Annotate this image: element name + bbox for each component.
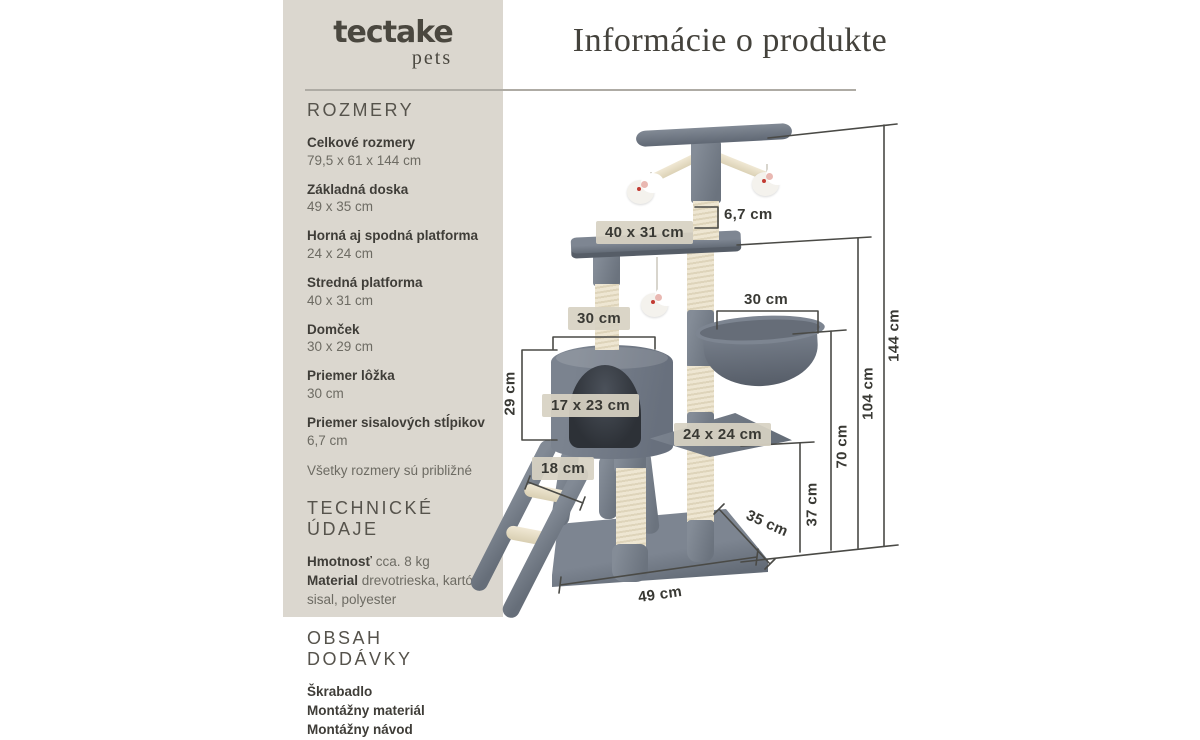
spec-value: 30 cm bbox=[307, 386, 344, 401]
mouse-toy bbox=[641, 291, 671, 317]
spec-label: Priemer lôžka bbox=[307, 368, 395, 383]
toy-string bbox=[656, 257, 658, 293]
tech-label: Material bbox=[307, 573, 358, 588]
sisal-post bbox=[687, 250, 714, 312]
dim-height-37: 37 cm bbox=[804, 470, 821, 540]
cat-tree-base-board bbox=[540, 500, 780, 592]
spec-label: Horná aj spodná platforma bbox=[307, 228, 478, 243]
post-foot bbox=[612, 544, 648, 582]
dim-base-depth: 35 cm bbox=[743, 507, 790, 540]
top-post bbox=[691, 141, 721, 203]
dim-post-diameter: 6,7 cm bbox=[724, 206, 773, 223]
section-heading-technicke: TECHNICKÉ ÚDAJE bbox=[307, 498, 489, 540]
dim-mid-platform: 40 x 31 cm bbox=[596, 221, 693, 244]
spec-value: 49 x 35 cm bbox=[307, 199, 373, 214]
spec-value: 24 x 24 cm bbox=[307, 246, 373, 261]
dim-house-width: 30 cm bbox=[568, 307, 630, 330]
spec-value: 30 x 29 cm bbox=[307, 339, 373, 354]
dim-house-door: 17 x 23 cm bbox=[542, 394, 639, 417]
spec-value: 6,7 cm bbox=[307, 433, 348, 448]
brand-name: tectake bbox=[283, 18, 503, 48]
sidebar-content: ROZMERY Celkové rozmery 79,5 x 61 x 144 … bbox=[307, 100, 489, 740]
delivery-item: Škrabadlo bbox=[307, 683, 489, 702]
sisal-post bbox=[616, 468, 646, 548]
spec-label: Stredná platforma bbox=[307, 275, 423, 290]
tech-label: Hmotnosť bbox=[307, 554, 372, 569]
spec-label: Domček bbox=[307, 322, 360, 337]
dim-small-platform: 24 x 24 cm bbox=[674, 423, 771, 446]
spec-value: 79,5 x 61 x 144 cm bbox=[307, 153, 421, 168]
dim-basket-width: 30 cm bbox=[744, 291, 788, 308]
tech-specs: Hmotnosť cca. 8 kg Material drevotrieska… bbox=[307, 553, 489, 610]
section-heading-obsah: OBSAH DODÁVKY bbox=[307, 628, 489, 670]
dim-house-height: 29 cm bbox=[502, 359, 519, 429]
spec-item: Domček 30 x 29 cm bbox=[307, 321, 489, 357]
mouse-toy bbox=[627, 178, 657, 204]
spec-item: Celkové rozmery 79,5 x 61 x 144 cm bbox=[307, 134, 489, 170]
header-divider bbox=[305, 89, 856, 91]
spec-label: Priemer sisalových stĺpikov bbox=[307, 415, 485, 430]
mouse-toy bbox=[752, 170, 782, 196]
section-heading-rozmery: ROZMERY bbox=[307, 100, 489, 121]
dim-height-70: 70 cm bbox=[834, 412, 851, 482]
dim-base-width: 49 cm bbox=[637, 583, 683, 606]
dim-height-144: 144 cm bbox=[886, 301, 903, 371]
delivery-item: Montážny materiál bbox=[307, 702, 489, 721]
spec-item: Horná aj spodná platforma 24 x 24 cm bbox=[307, 227, 489, 263]
dim-ladder-step: 18 cm bbox=[532, 457, 594, 480]
delivery-item: Montážny návod bbox=[307, 721, 489, 740]
cat-basket bbox=[694, 313, 828, 392]
spec-item: Základná doska 49 x 35 cm bbox=[307, 181, 489, 217]
sisal-post bbox=[687, 450, 714, 522]
spec-item: Priemer lôžka 30 cm bbox=[307, 367, 489, 403]
post-foot bbox=[687, 520, 714, 562]
page-title: Informácie o produkte bbox=[510, 22, 950, 60]
spec-value: 40 x 31 cm bbox=[307, 293, 373, 308]
dim-height-104: 104 cm bbox=[860, 359, 877, 429]
spec-label: Základná doska bbox=[307, 182, 408, 197]
sisal-post bbox=[693, 201, 719, 240]
spec-label: Celkové rozmery bbox=[307, 135, 415, 150]
dimensions-note: Všetky rozmery sú približné bbox=[307, 463, 489, 478]
brand-subtitle: pets bbox=[283, 48, 503, 68]
spec-item: Stredná platforma 40 x 31 cm bbox=[307, 274, 489, 310]
tech-value: cca. 8 kg bbox=[372, 554, 430, 569]
spec-item: Priemer sisalových stĺpikov 6,7 cm bbox=[307, 414, 489, 450]
brand-logo: tectake pets bbox=[283, 18, 503, 68]
